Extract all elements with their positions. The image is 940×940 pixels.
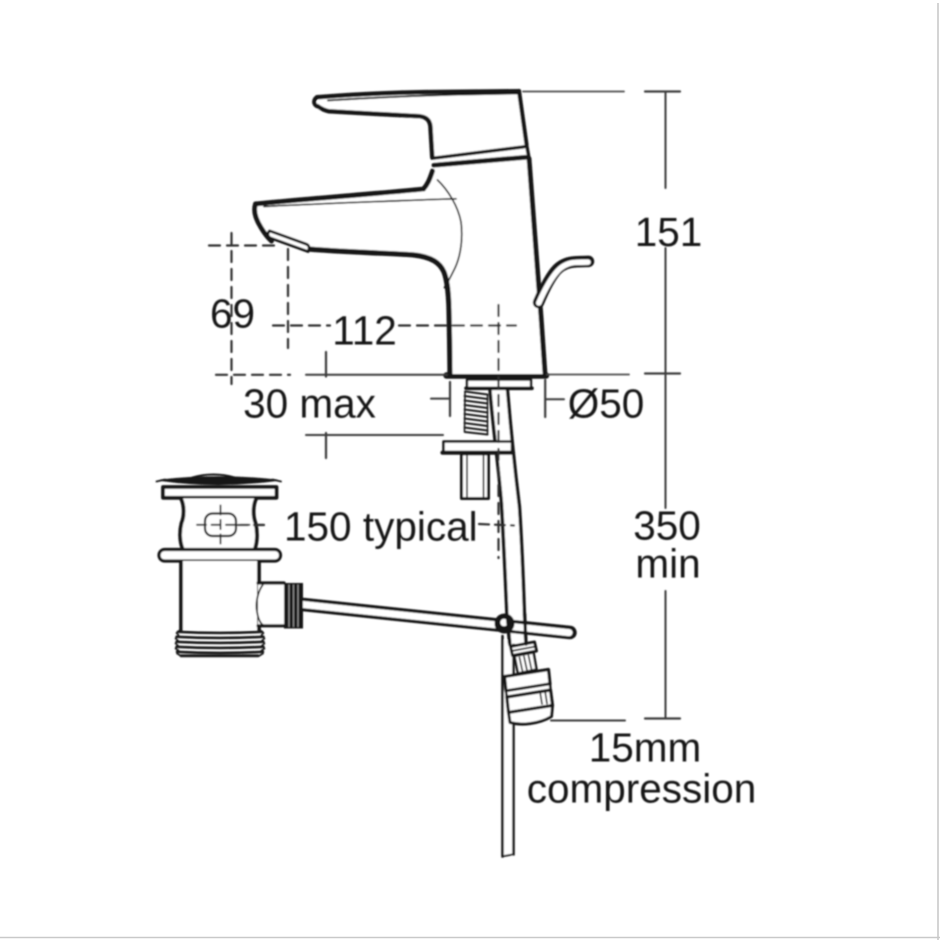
svg-text:min: min (635, 541, 700, 587)
svg-text:compression: compression (527, 765, 757, 811)
svg-text:150 typical: 150 typical (284, 504, 478, 550)
svg-text:30 max: 30 max (243, 381, 376, 427)
svg-text:15mm: 15mm (589, 725, 702, 771)
svg-text:151: 151 (635, 209, 703, 255)
svg-text:Ø50: Ø50 (568, 380, 645, 426)
svg-text:69: 69 (210, 291, 255, 337)
svg-text:112: 112 (332, 308, 397, 354)
